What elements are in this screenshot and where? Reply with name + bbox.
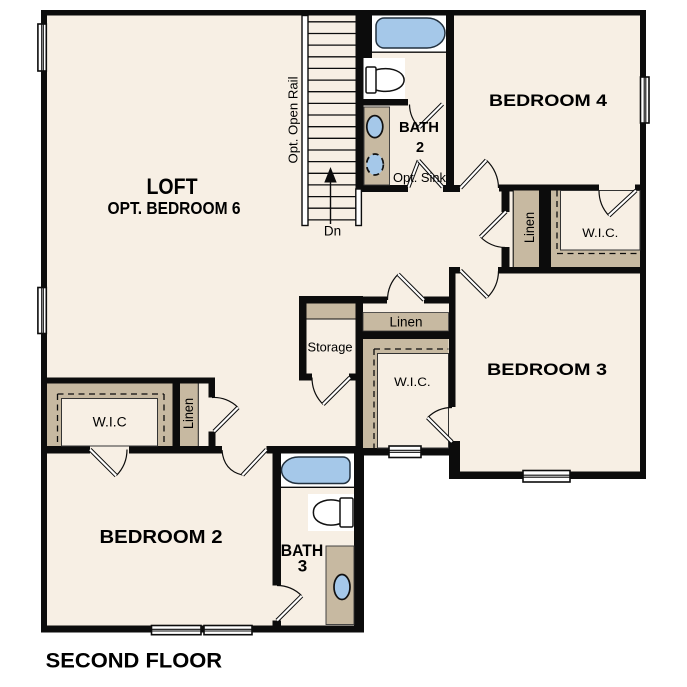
svg-text:Linen: Linen bbox=[181, 398, 196, 429]
svg-text:W.I.C.: W.I.C. bbox=[582, 226, 618, 240]
svg-text:LOFT: LOFT bbox=[147, 174, 198, 199]
svg-text:3: 3 bbox=[298, 557, 307, 576]
svg-text:Linen: Linen bbox=[390, 315, 423, 330]
svg-text:OPT. BEDROOM 6: OPT. BEDROOM 6 bbox=[108, 198, 241, 218]
svg-text:W.I.C.: W.I.C. bbox=[394, 375, 430, 389]
svg-text:Opt. Open Rail: Opt. Open Rail bbox=[287, 77, 301, 164]
svg-text:Dn: Dn bbox=[324, 224, 341, 239]
svg-text:Linen: Linen bbox=[522, 212, 537, 243]
svg-text:Storage: Storage bbox=[308, 340, 353, 355]
svg-text:BEDROOM 4: BEDROOM 4 bbox=[489, 91, 608, 110]
svg-text:W.I.C: W.I.C bbox=[93, 414, 127, 429]
svg-text:2: 2 bbox=[416, 140, 424, 156]
svg-text:Opt. Sink: Opt. Sink bbox=[393, 171, 447, 185]
svg-text:SECOND FLOOR: SECOND FLOOR bbox=[46, 648, 223, 673]
svg-text:BATH: BATH bbox=[399, 120, 439, 136]
svg-text:BEDROOM 3: BEDROOM 3 bbox=[487, 360, 607, 379]
svg-text:BEDROOM 2: BEDROOM 2 bbox=[100, 527, 223, 547]
